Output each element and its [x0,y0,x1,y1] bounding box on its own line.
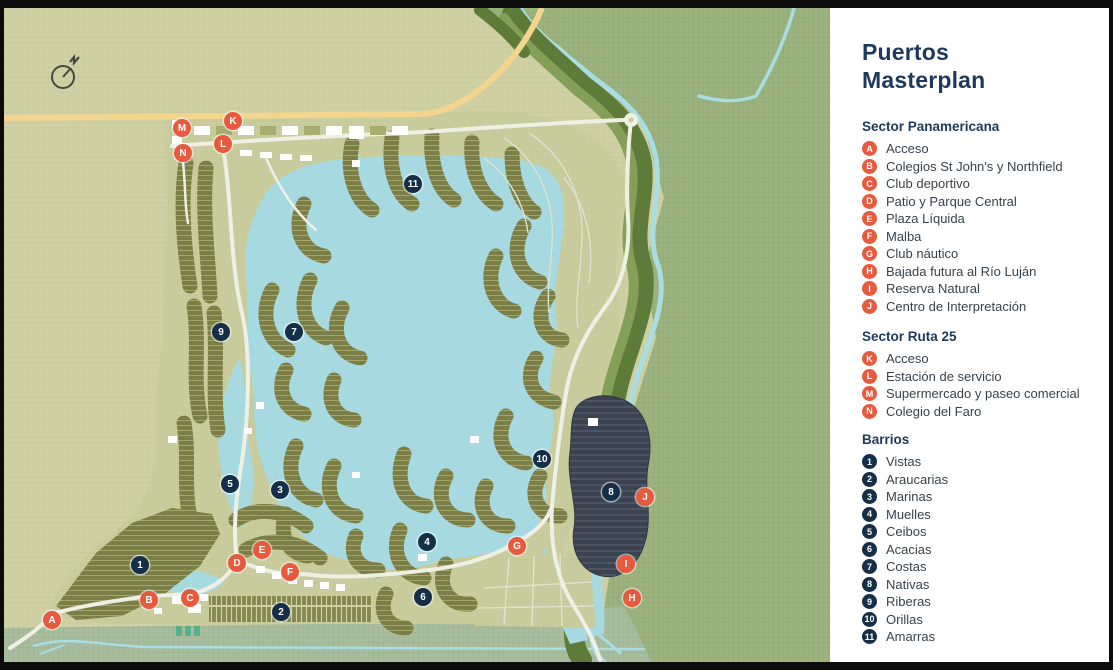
map-marker-9: 9 [212,323,230,341]
map-marker-5: 5 [221,475,239,493]
legend-label: Marinas [886,489,932,504]
legend-section-0: Sector PanamericanaAAccesoBColegios St J… [862,119,1095,315]
legend-item-8: 8Nativas [862,576,1095,594]
legend-badge-F: F [862,229,877,244]
legend-label: Acacias [886,542,932,557]
legend-badge-C: C [862,176,877,191]
legend-badge-8: 8 [862,577,877,592]
legend-badge-E: E [862,211,877,226]
map-marker-1: 1 [131,556,149,574]
legend-section-heading: Sector Panamericana [862,119,1095,134]
map-marker-H: H [623,589,641,607]
legend-label: Club náutico [886,246,958,261]
legend-badge-A: A [862,141,877,156]
map-marker-4: 4 [418,533,436,551]
map-marker-K: K [224,112,242,130]
map-marker-J: J [636,488,654,506]
legend-sections: Sector PanamericanaAAccesoBColegios St J… [862,119,1095,646]
map-marker-6: 6 [414,588,432,606]
map-marker-N: N [174,144,192,162]
legend-label: Club deportivo [886,176,970,191]
legend-label: Nativas [886,577,929,592]
masterplan-map: ABCDEFGHIJKLMN1234567891011 [4,8,830,662]
map-marker-3: 3 [271,481,289,499]
legend-label: Estación de servicio [886,369,1002,384]
map-artwork [4,8,830,662]
legend-item-10: 10Orillas [862,611,1095,629]
legend-section-heading: Barrios [862,432,1095,447]
legend-badge-4: 4 [862,507,877,522]
map-marker-A: A [43,611,61,629]
legend-item-7: 7Costas [862,558,1095,576]
map-marker-E: E [253,541,271,559]
legend-badge-H: H [862,264,877,279]
legend-badge-1: 1 [862,454,877,469]
legend-label: Malba [886,229,921,244]
legend-section-2: Barrios1Vistas2Araucarias3Marinas4Muelle… [862,432,1095,646]
legend-label: Colegio del Faro [886,404,981,419]
map-marker-D: D [228,554,246,572]
roundabout-center [629,118,634,123]
legend-badge-10: 10 [862,612,877,627]
legend-label: Costas [886,559,926,574]
legend-badge-B: B [862,159,877,174]
legend-label: Colegios St John's y Northfield [886,159,1063,174]
legend-label: Supermercado y paseo comercial [886,386,1080,401]
legend-badge-K: K [862,351,877,366]
legend-item-D: DPatio y Parque Central [862,193,1095,211]
legend-label: Amarras [886,629,935,644]
legend-item-5: 5Ceibos [862,523,1095,541]
legend-item-B: BColegios St John's y Northfield [862,158,1095,176]
legend-label: Plaza Líquida [886,211,965,226]
legend-label: Patio y Parque Central [886,194,1017,209]
legend-item-J: JCentro de Interpretación [862,298,1095,316]
legend-label: Reserva Natural [886,281,980,296]
legend-label: Acceso [886,141,929,156]
legend-section-1: Sector Ruta 25KAccesoLEstación de servic… [862,329,1095,420]
legend-badge-M: M [862,386,877,401]
legend-badge-2: 2 [862,472,877,487]
barrio-araucarias-strips [209,596,372,622]
legend-label: Araucarias [886,472,948,487]
legend-badge-L: L [862,369,877,384]
map-title: Puertos Masterplan [862,38,1095,94]
legend-label: Vistas [886,454,921,469]
map-marker-C: C [181,589,199,607]
legend-label: Orillas [886,612,923,627]
legend-label: Riberas [886,594,931,609]
legend-item-N: NColegio del Faro [862,403,1095,421]
legend-section-heading: Sector Ruta 25 [862,329,1095,344]
legend-item-C: CClub deportivo [862,175,1095,193]
map-marker-L: L [214,135,232,153]
legend-badge-3: 3 [862,489,877,504]
legend-item-G: GClub náutico [862,245,1095,263]
legend-label: Muelles [886,507,931,522]
legend-badge-G: G [862,246,877,261]
map-marker-I: I [617,555,635,573]
map-marker-8: 8 [602,483,620,501]
legend-item-1: 1Vistas [862,453,1095,471]
legend-panel: Puertos Masterplan Sector PanamericanaAA… [830,8,1109,662]
legend-badge-6: 6 [862,542,877,557]
legend-item-L: LEstación de servicio [862,368,1095,386]
legend-item-A: AAcceso [862,140,1095,158]
map-marker-11: 11 [404,175,422,193]
legend-item-6: 6Acacias [862,541,1095,559]
map-marker-2: 2 [272,603,290,621]
legend-label: Centro de Interpretación [886,299,1026,314]
legend-item-4: 4Muelles [862,506,1095,524]
legend-badge-11: 11 [862,629,877,644]
legend-item-F: FMalba [862,228,1095,246]
legend-item-11: 11Amarras [862,628,1095,646]
legend-item-M: MSupermercado y paseo comercial [862,385,1095,403]
legend-badge-N: N [862,404,877,419]
legend-label: Acceso [886,351,929,366]
map-marker-7: 7 [285,323,303,341]
legend-badge-5: 5 [862,524,877,539]
map-marker-F: F [281,563,299,581]
legend-badge-D: D [862,194,877,209]
masterplan-poster: ABCDEFGHIJKLMN1234567891011 Puertos Mast… [0,0,1113,670]
legend-badge-I: I [862,281,877,296]
map-marker-B: B [140,591,158,609]
legend-item-3: 3Marinas [862,488,1095,506]
legend-badge-9: 9 [862,594,877,609]
legend-item-9: 9Riberas [862,593,1095,611]
legend-badge-J: J [862,299,877,314]
legend-label: Bajada futura al Río Luján [886,264,1036,279]
se-parcel-zone [474,550,596,628]
legend-item-E: EPlaza Líquida [862,210,1095,228]
legend-item-I: IReserva Natural [862,280,1095,298]
legend-item-2: 2Araucarias [862,471,1095,489]
map-marker-M: M [173,119,191,137]
map-marker-G: G [508,537,526,555]
legend-badge-7: 7 [862,559,877,574]
legend-item-K: KAcceso [862,350,1095,368]
map-marker-10: 10 [533,450,551,468]
legend-label: Ceibos [886,524,926,539]
legend-item-H: HBajada futura al Río Luján [862,263,1095,281]
